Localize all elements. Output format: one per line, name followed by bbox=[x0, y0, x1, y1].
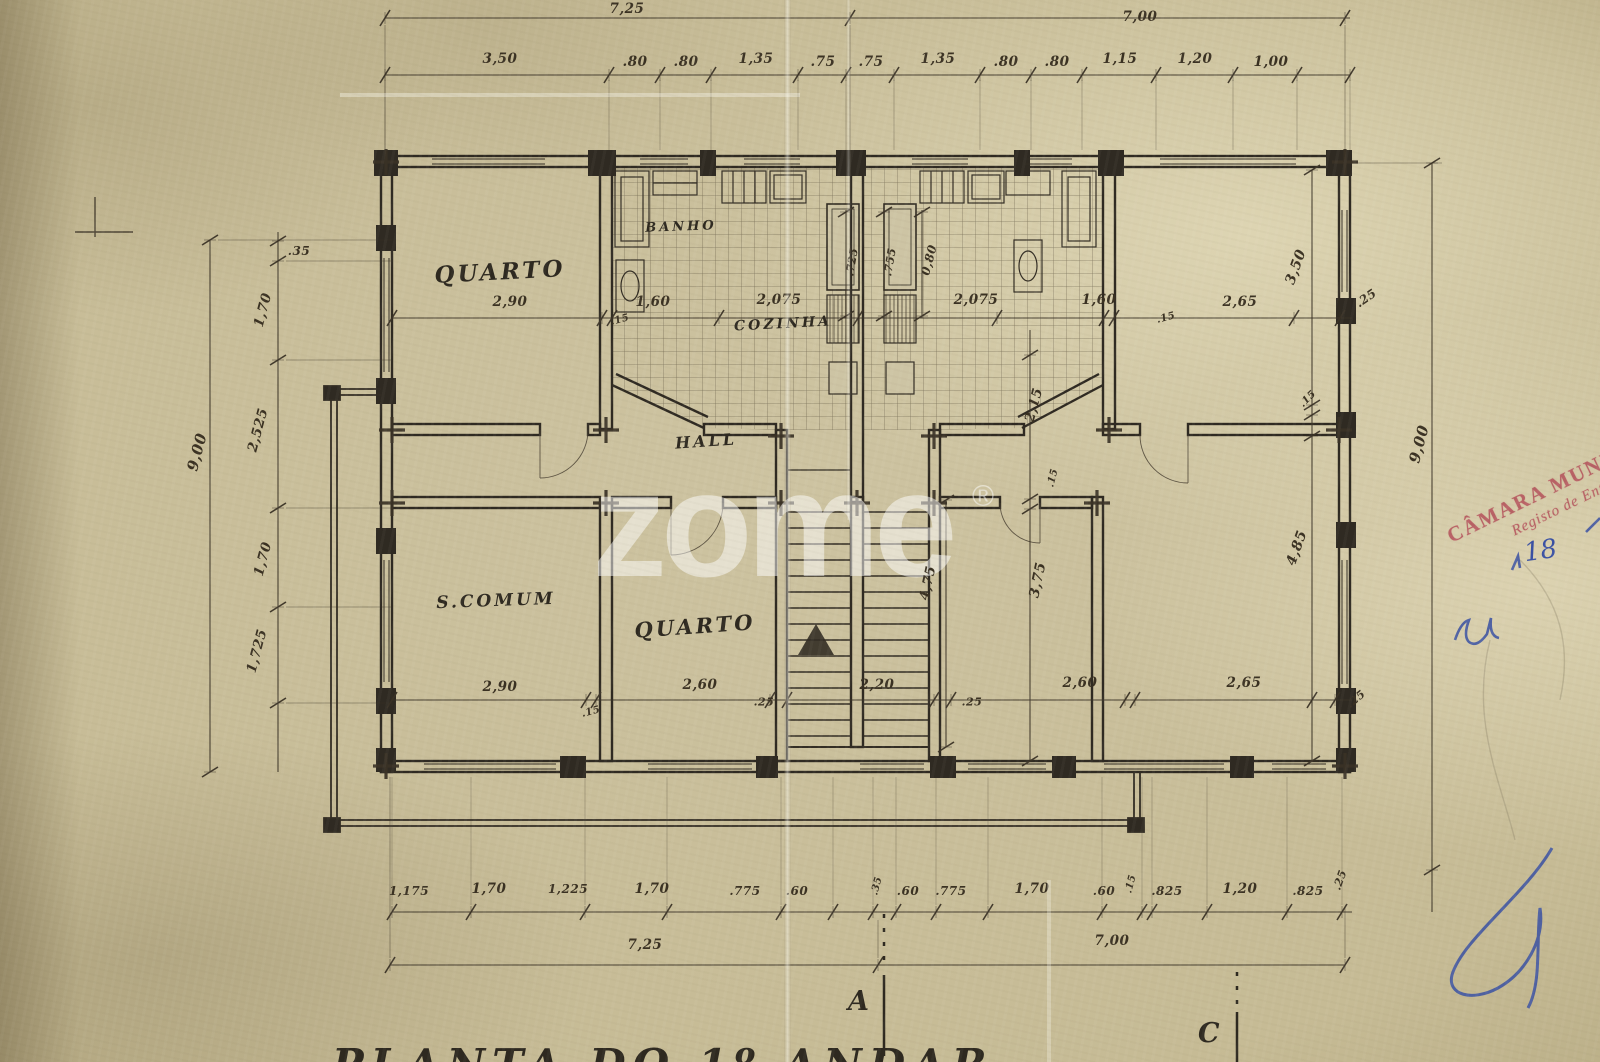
dimension-label: 1,20 bbox=[1178, 51, 1213, 67]
drawing-title: PLANTA DO 1º ANDAR bbox=[332, 1040, 994, 1062]
dimension-label: .75 bbox=[811, 54, 836, 70]
dimension-label: .60 bbox=[1093, 884, 1115, 898]
dimension-label: 1,20 bbox=[1223, 881, 1258, 897]
dimension-label: 3,50 bbox=[483, 51, 518, 67]
dimension-label: 7,25 bbox=[628, 937, 663, 953]
dimension-label: .25 bbox=[962, 696, 983, 709]
dimension-label: 1,70 bbox=[472, 881, 507, 897]
dimension-label: .80 bbox=[994, 54, 1019, 70]
dimension-label: .75 bbox=[859, 54, 884, 70]
dimension-label: 7,00 bbox=[1095, 933, 1130, 949]
blue-flourish bbox=[1451, 848, 1552, 1008]
dimension-label: .80 bbox=[674, 54, 699, 70]
floor-plan-sheet: zome ® A C PLANTA DO 1º ANDAR CÂMARA MUN… bbox=[0, 0, 1600, 1062]
dimension-label: 1,60 bbox=[1082, 292, 1117, 308]
dimension-label: 1,35 bbox=[921, 51, 956, 67]
section-marker-c: C bbox=[1198, 1018, 1220, 1049]
dimension-label: .80 bbox=[1045, 54, 1070, 70]
dimension-label: 2,60 bbox=[1063, 675, 1098, 691]
dimension-label: 2,65 bbox=[1227, 675, 1262, 691]
dimension-label: 7,00 bbox=[1123, 9, 1158, 25]
dimension-label: 2,90 bbox=[493, 294, 528, 310]
dimension-label: 2,65 bbox=[1223, 294, 1258, 310]
floor-plan-linework bbox=[0, 0, 1600, 1062]
dimension-label: .775 bbox=[729, 884, 760, 898]
dimension-label: 2,075 bbox=[757, 292, 802, 308]
dimension-label: .775 bbox=[935, 884, 966, 898]
room-label: S.COMUM bbox=[436, 589, 556, 613]
dimension-label: .80 bbox=[623, 54, 648, 70]
dimension-label: 1,225 bbox=[548, 882, 588, 896]
dimension-label: .825 bbox=[1151, 884, 1182, 898]
registration-cross bbox=[75, 197, 133, 237]
dimension-label: 2,20 bbox=[860, 677, 895, 693]
dimension-label: 1,35 bbox=[739, 51, 774, 67]
blue-pen-marks bbox=[1451, 518, 1600, 1008]
dimension-label: .25 bbox=[754, 696, 775, 709]
section-marker-a: A bbox=[848, 986, 869, 1017]
dimension-label: 1,15 bbox=[1103, 51, 1138, 67]
dimension-label: .825 bbox=[1292, 884, 1323, 898]
dimension-label: 1,70 bbox=[1015, 881, 1050, 897]
dimension-label: .60 bbox=[786, 884, 808, 898]
dimension-label: 1,175 bbox=[389, 884, 429, 898]
dimension-label: .60 bbox=[897, 884, 919, 898]
pencil-marks bbox=[1483, 560, 1564, 840]
handwritten-number: 18 bbox=[1522, 534, 1559, 568]
dimension-label: 1,00 bbox=[1254, 54, 1289, 70]
dimension-label: 7,25 bbox=[610, 1, 645, 17]
dimension-label: 2,075 bbox=[954, 292, 999, 308]
dimension-label: .35 bbox=[288, 244, 310, 258]
dimension-label: 1,60 bbox=[636, 294, 671, 310]
dimension-label: 2,60 bbox=[683, 677, 718, 693]
dimension-label: 1,70 bbox=[635, 881, 670, 897]
room-label: BANHO bbox=[645, 218, 717, 235]
dimension-label: 2,90 bbox=[483, 679, 518, 695]
blue-squiggle bbox=[1455, 618, 1499, 644]
